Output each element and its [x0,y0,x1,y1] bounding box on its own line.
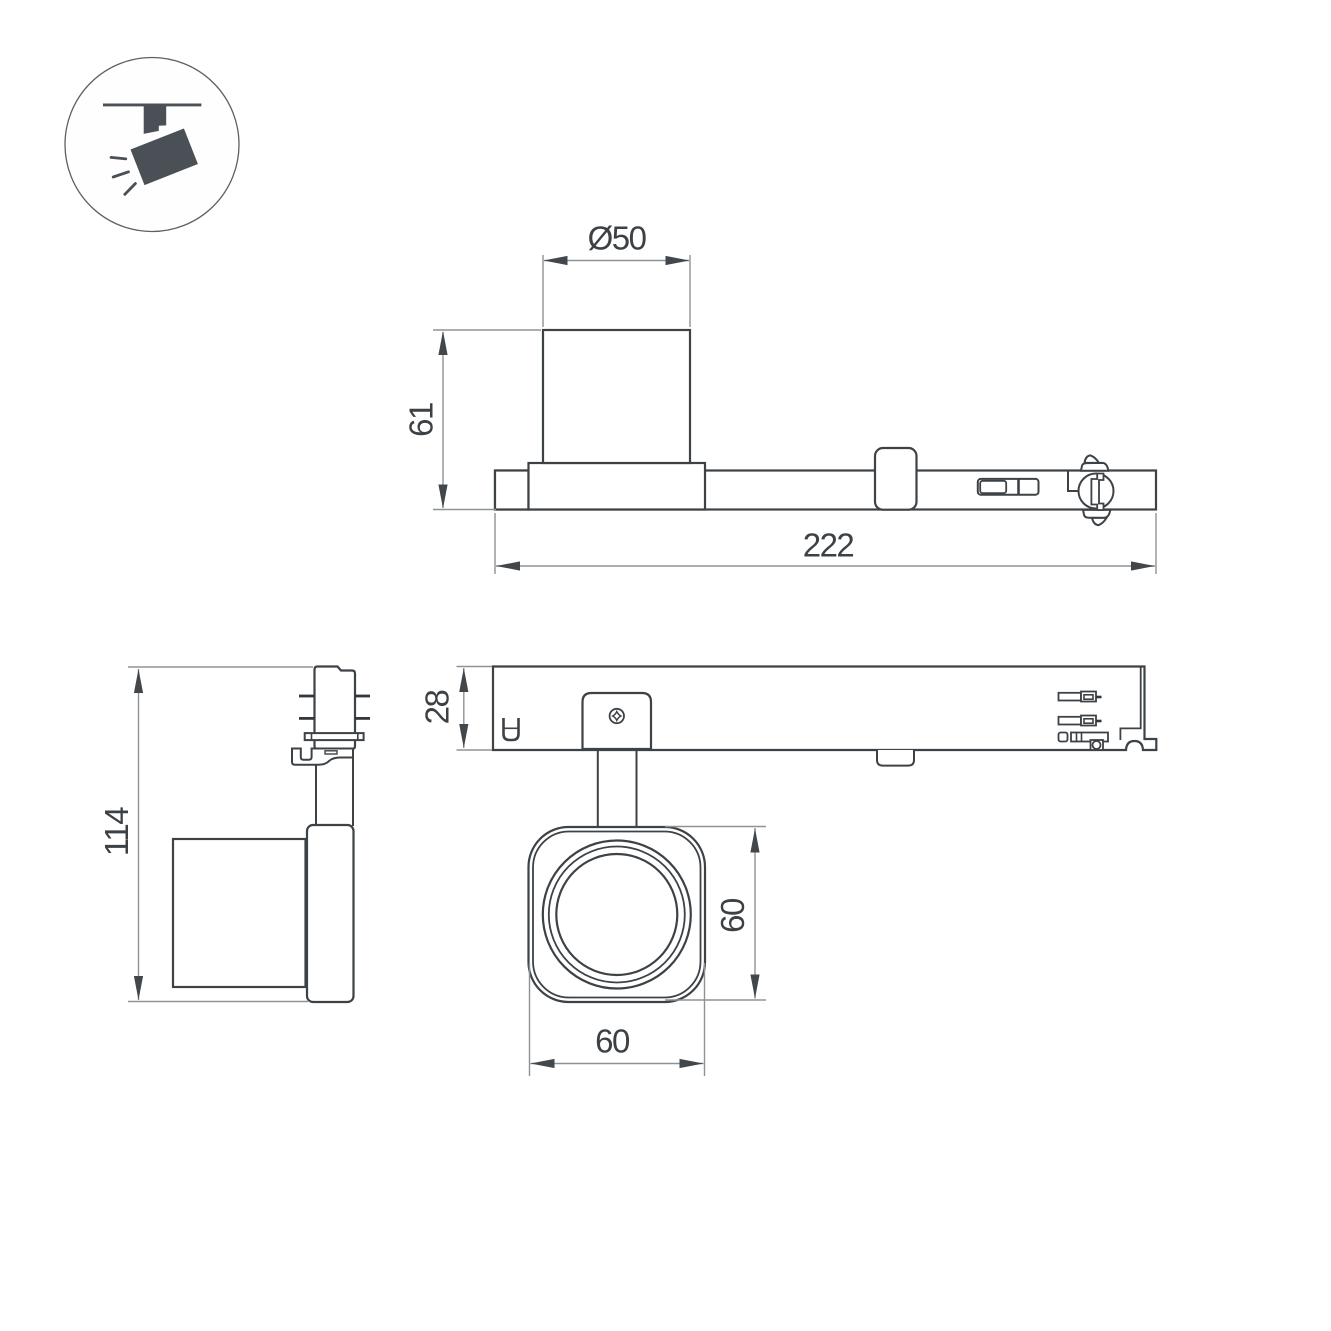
svg-text:Ø50: Ø50 [588,220,647,257]
svg-text:60: 60 [595,1023,630,1060]
svg-text:114: 114 [98,807,135,856]
svg-text:60: 60 [714,898,751,933]
svg-text:61: 61 [403,403,440,437]
svg-text:222: 222 [803,527,854,564]
svg-text:28: 28 [419,691,456,725]
